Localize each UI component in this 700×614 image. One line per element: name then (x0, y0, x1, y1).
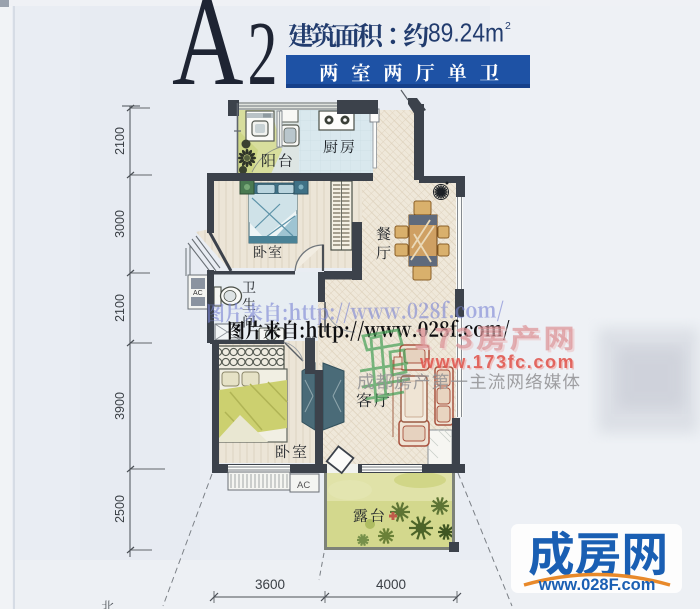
svg-text:AC: AC (297, 480, 310, 491)
svg-text:www.173fc.com: www.173fc.com (419, 352, 575, 372)
svg-text:3900: 3900 (113, 392, 127, 420)
svg-text:AC: AC (193, 290, 203, 297)
svg-text:2500: 2500 (113, 495, 127, 523)
svg-text:www.028F.com: www.028F.com (538, 576, 656, 594)
svg-text:4000: 4000 (376, 577, 406, 592)
svg-text:89.24m: 89.24m (428, 19, 504, 48)
svg-text:2: 2 (248, 3, 278, 105)
svg-text:2: 2 (505, 20, 511, 32)
svg-text:3600: 3600 (255, 577, 285, 592)
svg-text:3000: 3000 (113, 210, 127, 238)
svg-text:2100: 2100 (113, 294, 127, 322)
svg-text:A: A (172, 0, 244, 112)
svg-text:2100: 2100 (113, 127, 127, 155)
